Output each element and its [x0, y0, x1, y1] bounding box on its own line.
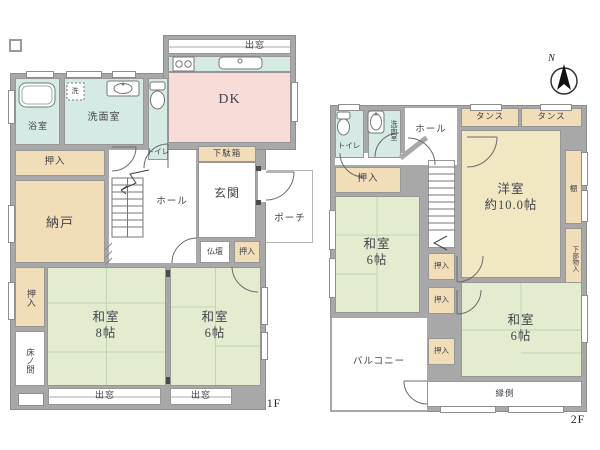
- label-genkan: 玄関: [202, 185, 252, 203]
- label-washitsu6-1f: 和室 6帖: [185, 305, 245, 345]
- label-yoshitsu: 洋室 約10.0帖: [466, 178, 556, 216]
- window-2f-left-1: [329, 210, 336, 250]
- label-hall-1f: ホール: [148, 195, 196, 209]
- compass-north-label: N: [544, 52, 560, 65]
- window-dk-right: [291, 82, 298, 122]
- label-toilet-1f: トイレ: [144, 146, 172, 157]
- label-engawa: 縁側: [485, 387, 525, 400]
- label-washroom-2f: 洗面室: [387, 111, 400, 149]
- label-oshiire-2f-3: 押入: [428, 344, 455, 358]
- window-2f-bottom-1: [440, 406, 496, 413]
- label-oshiire-2f-2: 押入: [428, 293, 455, 307]
- window-right-2: [261, 332, 268, 360]
- label-washer: 洗: [67, 86, 84, 98]
- label-demado-left: 出窓: [75, 389, 135, 403]
- window-genkan-door-gap: [258, 170, 267, 202]
- window-2f-left-2: [329, 258, 336, 298]
- window-top-1: [26, 71, 54, 78]
- label-getabako: 下駄箱: [198, 147, 256, 160]
- label-oshiire-top-1f: 押入: [30, 155, 80, 169]
- window-left-1: [8, 90, 15, 124]
- label-washitsu8: 和室 8帖: [76, 305, 136, 345]
- window-bottom-left: [18, 393, 44, 406]
- window-2f-top-toilet: [338, 104, 360, 111]
- floor2-label: 2F: [562, 413, 594, 428]
- label-shita-mono: 下部物入: [567, 231, 580, 287]
- label-dk: DK: [168, 85, 291, 115]
- label-hall-2f: ホール: [409, 124, 453, 137]
- label-tansu-right: タンス: [523, 110, 580, 124]
- window-2f-right-2: [581, 190, 588, 222]
- label-porch: ポーチ: [268, 213, 312, 226]
- window-left-2: [8, 205, 15, 243]
- label-tansu-left: タンス: [463, 110, 517, 124]
- label-oshiire-top-2f: 押入: [344, 172, 392, 187]
- room-porch: [266, 170, 313, 243]
- kitchen-counter: [168, 56, 291, 72]
- floor1-label: 1F: [258, 397, 290, 412]
- label-tana: 棚: [565, 182, 582, 195]
- label-demado-right: 出窓: [172, 389, 230, 403]
- label-bath: 浴室: [17, 120, 59, 134]
- label-oshiire-2f-1: 押入: [428, 259, 455, 273]
- window-left-3: [8, 282, 15, 320]
- floorplan-canvas: 出窓 DK 浴室 洗面室 洗 トイレ 押入 納戸 ホール 下駄箱 玄関 ポーチ …: [0, 0, 600, 450]
- label-washroom-1f: 洗面室: [72, 110, 136, 124]
- window-2f-right-1: [581, 152, 588, 186]
- label-toilet-2f: トイレ: [334, 140, 364, 151]
- stairs-area-2f: [428, 160, 455, 248]
- label-oshiire-left-1f: 押入: [19, 277, 41, 319]
- label-balcony: バルコニー: [338, 355, 420, 369]
- label-demado-top: 出窓: [225, 39, 285, 53]
- window-top-3: [112, 71, 136, 78]
- label-nando: 納戸: [33, 214, 87, 232]
- label-tokonoma: 床ノ間: [20, 338, 40, 384]
- label-washitsu6-2f-right: 和室 6帖: [491, 308, 551, 348]
- compass-icon: [551, 64, 577, 94]
- label-washitsu6-2f-left: 和室 6帖: [347, 232, 407, 272]
- corner-box: [9, 39, 22, 52]
- window-2f-right-3: [581, 295, 588, 343]
- window-2f-bottom-2: [508, 406, 564, 413]
- label-butsudan: 仏壇: [200, 244, 230, 260]
- window-right-1: [261, 287, 268, 325]
- window-top-2: [66, 71, 102, 78]
- label-oshiire-genkan: 押入: [234, 244, 260, 260]
- room-bath-1f: [15, 78, 60, 145]
